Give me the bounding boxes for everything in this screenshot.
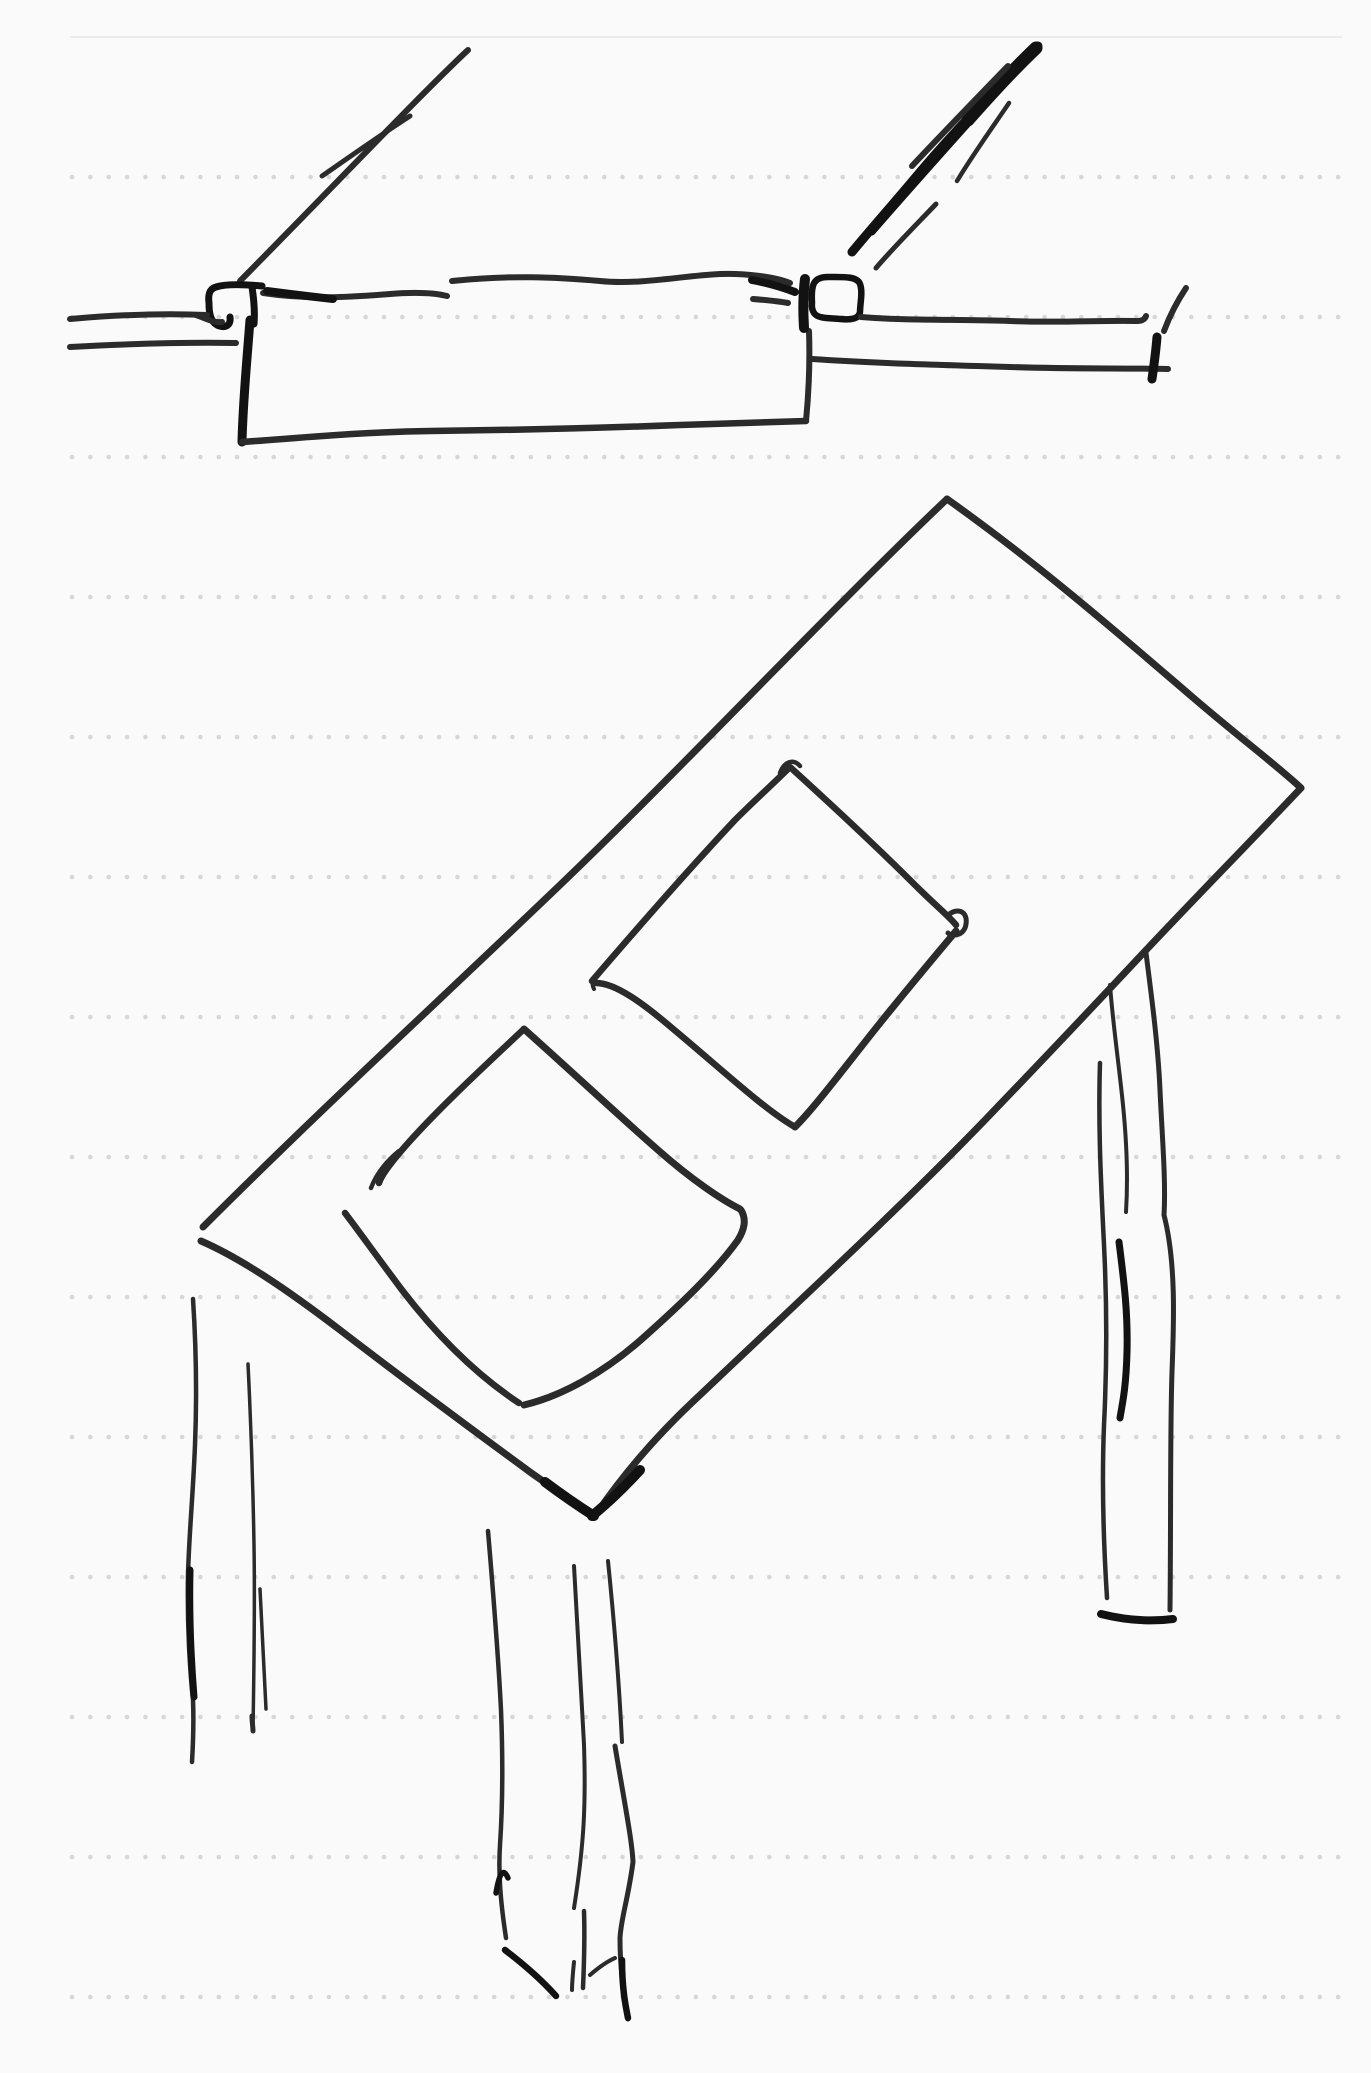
table-edge-section-sketch-stroke-25 — [1152, 337, 1157, 379]
table-edge-section-sketch-stroke-22 — [753, 299, 788, 303]
table-top-perspective-sketch-stroke-32 — [583, 1911, 584, 1988]
table-edge-section-sketch-stroke-20 — [803, 279, 805, 328]
table-top-perspective-sketch-stroke-26 — [252, 1716, 253, 1731]
table-top-perspective-sketch-stroke-33 — [572, 1962, 574, 1990]
drawing-surface[interactable] — [0, 0, 1371, 2073]
sketch-canvas[interactable] — [0, 0, 1371, 2073]
table-edge-section-sketch-stroke-19 — [806, 331, 809, 421]
